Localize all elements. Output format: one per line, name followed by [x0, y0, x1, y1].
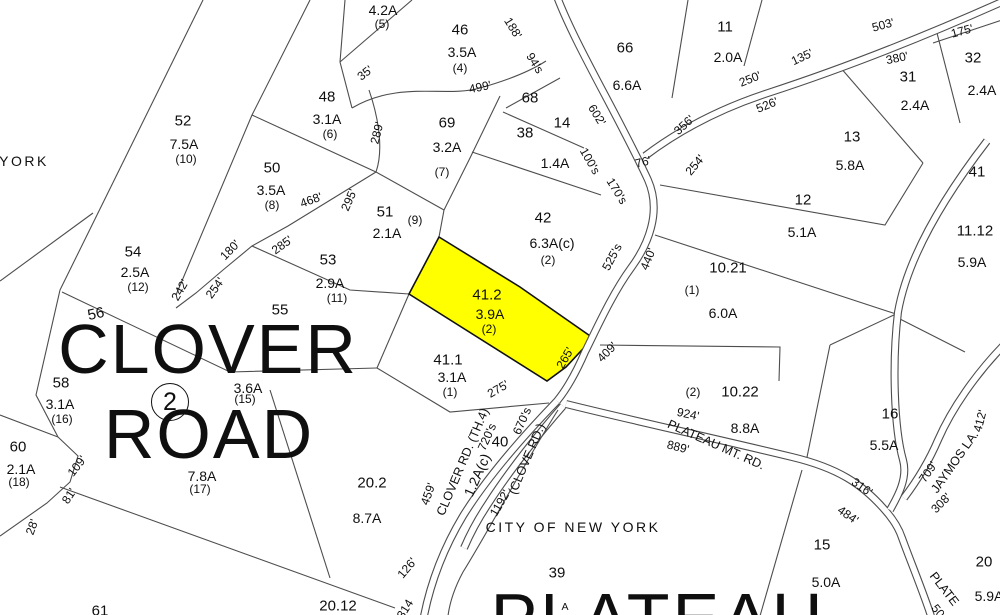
parcel-acreage-label: 5.0A	[812, 575, 841, 589]
parcel-lot-note-label: (16)	[51, 413, 72, 425]
distance-label: 468'	[298, 191, 323, 210]
distance-label: 289'	[368, 121, 385, 146]
distance-label: 285'	[269, 234, 294, 257]
parcel-number-label: 69	[439, 116, 456, 131]
distance-label: 126'	[395, 556, 419, 581]
parcel-lot-note-label: (1)	[443, 386, 458, 398]
distance-label: 100's	[578, 146, 603, 177]
parcel-number-label: 31	[900, 70, 917, 85]
distance-label: 175'	[950, 22, 975, 39]
distance-label: 76'	[634, 154, 652, 169]
distance-label: 499'	[468, 79, 492, 95]
parcel-acreage-label: 6.3A(c)	[529, 236, 574, 250]
distance-label: 50	[929, 602, 947, 615]
parcel-lot-note-label: (1)	[685, 284, 700, 296]
parcel-acreage-label: 2.4A	[968, 83, 997, 97]
distance-label: 250'	[737, 69, 762, 88]
distance-label: 889'	[666, 438, 691, 455]
parcel-acreage-label: 3.1A	[46, 397, 75, 411]
road-name-label: JAYMOS LA.	[929, 429, 981, 496]
parcel-number-label: 60	[10, 440, 27, 455]
parcel-number-label: 20.2	[357, 476, 386, 491]
road-name-label: PLATE	[927, 570, 961, 608]
parcel-acreage-label: 5.5A	[870, 438, 899, 452]
parcel-number-label: 50	[264, 161, 281, 176]
distance-label: 109'	[65, 454, 88, 479]
parcel-lot-note-label: (2)	[686, 386, 701, 398]
parcel-number-label: 61	[92, 604, 109, 615]
parcel-number-label: 40	[492, 435, 509, 450]
distance-label: 180'	[218, 238, 242, 262]
parcel-number-label: 11	[717, 20, 733, 35]
distance-label: 412'	[971, 409, 988, 434]
parcel-acreage-label: 6.0A	[709, 306, 738, 320]
parcel-number-label: 16	[882, 407, 899, 422]
parcel-acreage-label: 1.4A	[541, 156, 570, 170]
area-name-label: YORK	[0, 154, 49, 168]
parcel-acreage-label: 5.8A	[836, 158, 865, 172]
parcel-lot-note-label: (2)	[482, 323, 497, 335]
distance-label: 308'	[929, 491, 953, 515]
distance-label: 295'	[339, 187, 359, 212]
parcel-number-label: 48	[319, 90, 336, 105]
parcel-acreage-label: 3.5A	[448, 45, 477, 59]
parcel-number-label: 68	[522, 91, 539, 106]
parcel-acreage-label: 3.2A	[433, 140, 462, 154]
distance-label: 526'	[754, 95, 779, 114]
parcel-acreage-label: 3.9A	[476, 307, 505, 321]
parcel-number-label: 11.12	[957, 224, 993, 239]
distance-label: 314	[395, 597, 416, 615]
distance-label: 94's	[524, 51, 546, 76]
parcel-acreage-label: 7.5A	[170, 137, 199, 151]
distance-label: 254'	[204, 275, 227, 300]
parcel-acreage-label: 8.7A	[353, 511, 382, 525]
distance-label: 81'	[60, 486, 79, 506]
distance-label: 459'	[419, 481, 438, 506]
parcel-number-label: 53	[320, 253, 337, 268]
road-name-label: (CLOVE RD.)	[506, 422, 547, 497]
parcel-acreage-label: 2.4A	[901, 98, 930, 112]
parcel-lot-note-label: (17)	[189, 483, 210, 495]
parcel-acreage-label: 3.5A	[257, 183, 286, 197]
distance-label: 135'	[789, 47, 814, 67]
parcel-number-label: 20.12	[319, 599, 357, 614]
parcel-lot-note-label: (18)	[8, 476, 29, 488]
big-road-name-label: CLOVER	[58, 314, 358, 384]
distance-label: 503'	[871, 16, 896, 33]
parcel-lot-note-label: (6)	[323, 128, 338, 140]
parcel-acreage-label: 6.6A	[613, 78, 642, 92]
big-area-name-label: PLATEAU	[491, 583, 826, 615]
parcel-number-label: 51	[377, 205, 394, 220]
parcel-acreage-label: 3.1A	[313, 112, 342, 126]
parcel-number-label: 14	[554, 116, 571, 131]
small-label: A	[561, 602, 568, 613]
parcel-acreage-label: 2.9A	[316, 276, 345, 290]
parcel-number-label: 15	[814, 538, 831, 553]
parcel-lot-note-label: (7)	[435, 166, 450, 178]
parcel-number-label: 41	[969, 165, 986, 180]
distance-label: 484'	[835, 504, 860, 527]
distance-label: 242'	[169, 277, 191, 302]
parcel-number-label: 20	[976, 555, 993, 570]
parcel-acreage-label: 2.0A	[714, 50, 743, 64]
parcel-acreage-label: 2.1A	[7, 462, 36, 476]
parcel-acreage-label: 2.1A	[373, 226, 402, 240]
parcel-acreage-label: 5.9A	[958, 255, 987, 269]
parcel-acreage-label: 2.5A	[121, 265, 150, 279]
big-road-name-label: ROAD	[104, 399, 314, 469]
tax-parcel-map: 2 YORK527.5A(10)503.5A(8)483.1A(6)4.2A(5…	[0, 0, 1000, 615]
parcel-lot-note-label: (8)	[265, 199, 280, 211]
distance-label: 35'	[355, 63, 375, 82]
parcel-number-label: 46	[452, 23, 469, 38]
parcel-lot-note-label: (4)	[453, 62, 468, 74]
parcel-number-label: 10.21	[709, 261, 747, 276]
parcel-lot-note-label: (2)	[541, 254, 556, 266]
parcel-number-label: 41.2	[472, 288, 501, 303]
parcel-number-label: 66	[617, 41, 634, 56]
area-name-label: CITY OF NEW YORK	[486, 520, 661, 534]
parcel-acreage-label: 3.1A	[438, 370, 467, 384]
distance-label: 265'	[554, 345, 576, 370]
distance-label: 356'	[672, 113, 697, 137]
parcel-lot-note-label: (10)	[175, 153, 196, 165]
distance-label: 316'	[849, 476, 874, 499]
distance-label: 924'	[676, 406, 700, 422]
parcel-number-label: 12	[795, 193, 812, 208]
parcel-number-label: 41.1	[433, 353, 462, 368]
distance-label: 28'	[24, 518, 41, 537]
distance-label: 440'	[638, 246, 657, 271]
distance-label: 188'	[502, 15, 524, 40]
parcel-number-label: 54	[125, 245, 142, 260]
parcel-lot-note-label: (9)	[408, 214, 423, 226]
distance-label: 1192'	[488, 488, 512, 518]
parcel-number-label: 52	[175, 114, 192, 129]
parcel-number-label: 42	[535, 211, 552, 226]
map-labels-layer: YORK527.5A(10)503.5A(8)483.1A(6)4.2A(5)4…	[0, 0, 1000, 615]
parcel-number-label: 10.22	[721, 385, 759, 400]
parcel-acreage-label: 4.2A	[369, 3, 398, 17]
parcel-acreage-label: 5.1A	[788, 225, 817, 239]
distance-label: 275'	[485, 378, 510, 400]
parcel-number-label: 32	[965, 51, 982, 66]
parcel-lot-note-label: (11)	[327, 292, 347, 304]
parcel-acreage-label: 5.9A	[975, 589, 1000, 603]
parcel-number-label: 13	[844, 130, 861, 145]
distance-label: 409'	[595, 340, 619, 364]
distance-label: 525's	[600, 242, 624, 273]
parcel-lot-note-label: (5)	[375, 18, 390, 30]
distance-label: 602'	[586, 102, 608, 127]
distance-label: 254'	[683, 153, 707, 178]
parcel-number-label: 38	[517, 126, 534, 141]
distance-label: 170's	[604, 176, 629, 206]
distance-label: 380'	[885, 50, 909, 66]
parcel-lot-note-label: (12)	[127, 281, 148, 293]
parcel-acreage-label: 8.8A	[731, 421, 760, 435]
